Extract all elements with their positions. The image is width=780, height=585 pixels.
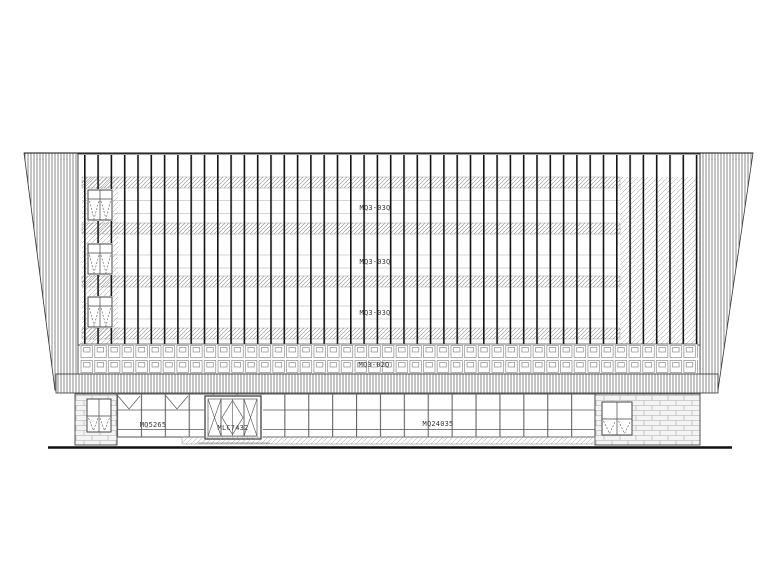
pier-casement-window-1 — [87, 189, 113, 221]
pier-casement-window-2 — [87, 243, 113, 275]
building-elevation-drawing: MQ3-03Q MQ3-03Q MQ3-03Q MQ3-02Q — [0, 0, 780, 585]
storefront-right-label: MQ24035 — [423, 420, 454, 428]
left-pier-window — [87, 399, 111, 432]
door-label: MLC7432 — [218, 424, 249, 432]
entrance-door — [204, 395, 263, 440]
right-wing-fin-panel — [700, 153, 753, 393]
storefront-left-label: MQ5265 — [140, 421, 167, 429]
floor-label-2: MQ3-03Q — [360, 258, 391, 266]
louver-panel-band — [80, 344, 698, 374]
curtain-wall-mullions — [84, 155, 698, 344]
pier-casement-window-3 — [87, 296, 113, 328]
storefront-glazing — [117, 394, 595, 437]
floor-label-1: MQ3-03Q — [360, 204, 391, 212]
fin-strip-band — [56, 374, 718, 393]
right-pier-window — [602, 402, 632, 435]
left-wing-fin-panel — [24, 153, 78, 393]
floor-label-3: MQ3-03Q — [360, 309, 391, 317]
elevation-drawing-sheet: MQ3-03Q MQ3-03Q MQ3-03Q MQ3-02Q — [0, 0, 780, 585]
louver-band-label: MQ3-02Q — [359, 361, 390, 369]
